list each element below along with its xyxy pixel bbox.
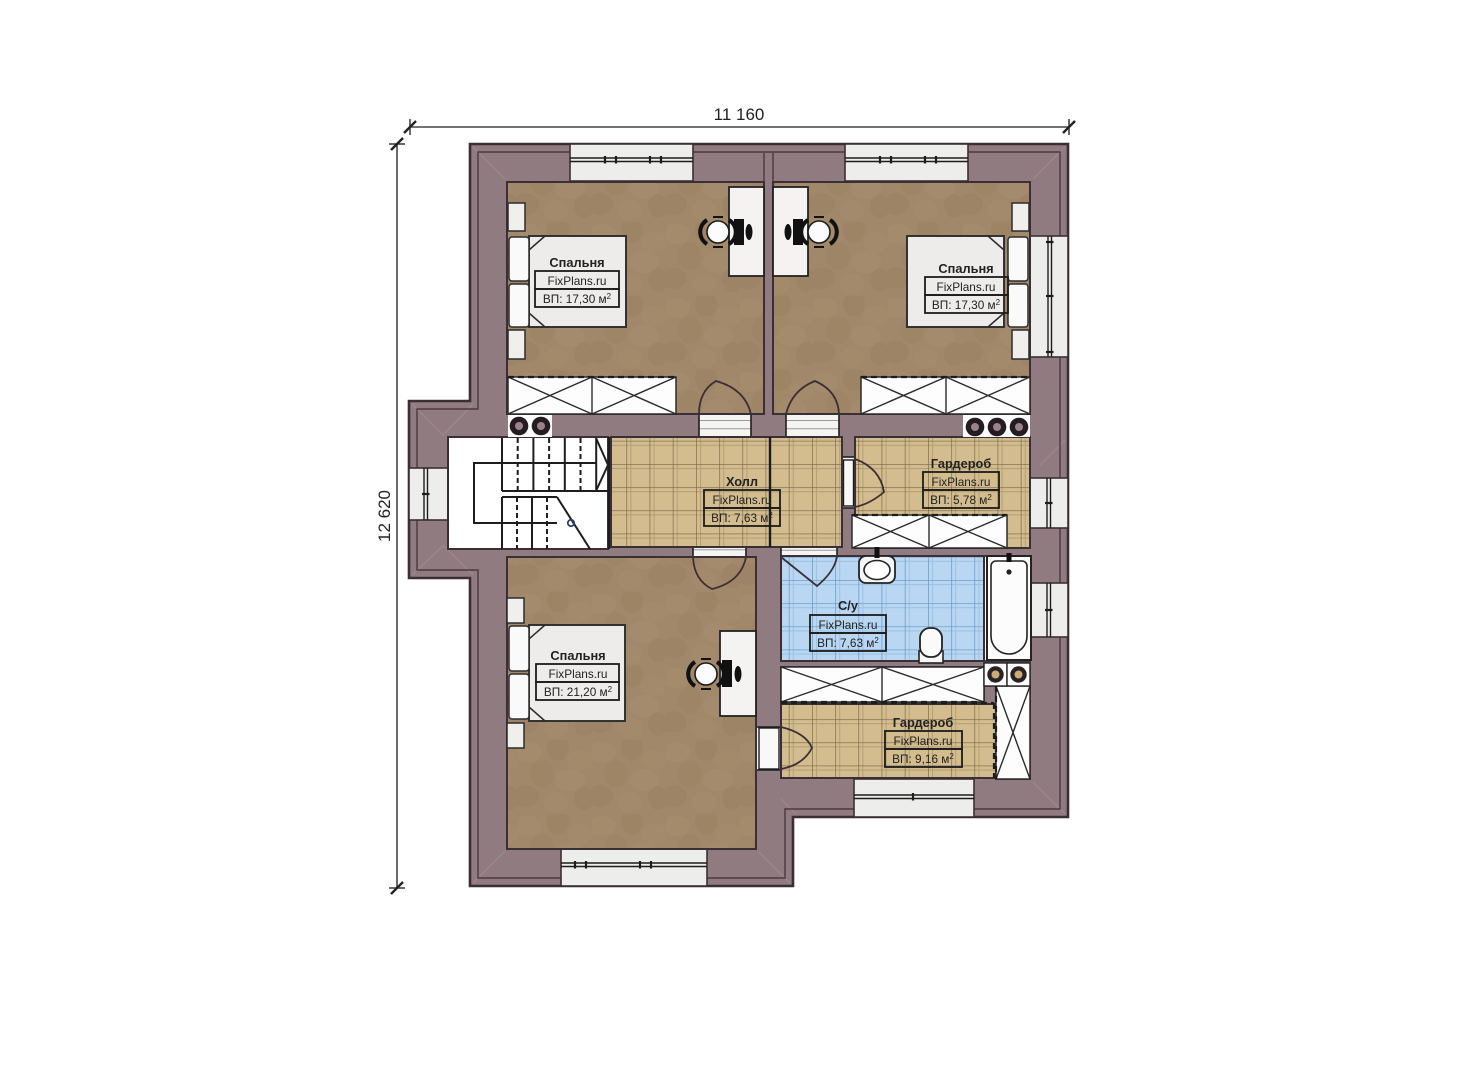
- svg-text:Гардероб: Гардероб: [931, 456, 992, 471]
- svg-text:ВП: 7,63 м2: ВП: 7,63 м2: [817, 636, 879, 650]
- svg-text:ВП: 7,63 м2: ВП: 7,63 м2: [711, 511, 773, 525]
- svg-text:Гардероб: Гардероб: [893, 715, 954, 730]
- svg-text:FixPlans.ru: FixPlans.ru: [893, 734, 952, 748]
- svg-text:11 160: 11 160: [714, 105, 765, 124]
- svg-text:Спальня: Спальня: [549, 255, 604, 270]
- svg-text:FixPlans.ru: FixPlans.ru: [931, 475, 990, 489]
- svg-text:ВП: 5,78 м2: ВП: 5,78 м2: [930, 493, 992, 507]
- svg-text:С/у: С/у: [838, 598, 859, 613]
- svg-text:ВП: 9,16 м2: ВП: 9,16 м2: [892, 752, 954, 766]
- svg-text:12 620: 12 620: [375, 490, 394, 542]
- svg-text:FixPlans.ru: FixPlans.ru: [712, 493, 771, 507]
- svg-text:Спальня: Спальня: [550, 648, 605, 663]
- svg-text:FixPlans.ru: FixPlans.ru: [936, 280, 995, 294]
- svg-text:ВП: 17,30 м2: ВП: 17,30 м2: [543, 292, 612, 306]
- svg-text:FixPlans.ru: FixPlans.ru: [818, 618, 877, 632]
- svg-text:FixPlans.ru: FixPlans.ru: [548, 667, 607, 681]
- svg-text:Спальня: Спальня: [938, 261, 993, 276]
- svg-text:Холл: Холл: [726, 474, 758, 489]
- svg-text:FixPlans.ru: FixPlans.ru: [547, 274, 606, 288]
- svg-text:ВП: 21,20 м2: ВП: 21,20 м2: [544, 685, 613, 699]
- svg-text:ВП: 17,30 м2: ВП: 17,30 м2: [932, 298, 1001, 312]
